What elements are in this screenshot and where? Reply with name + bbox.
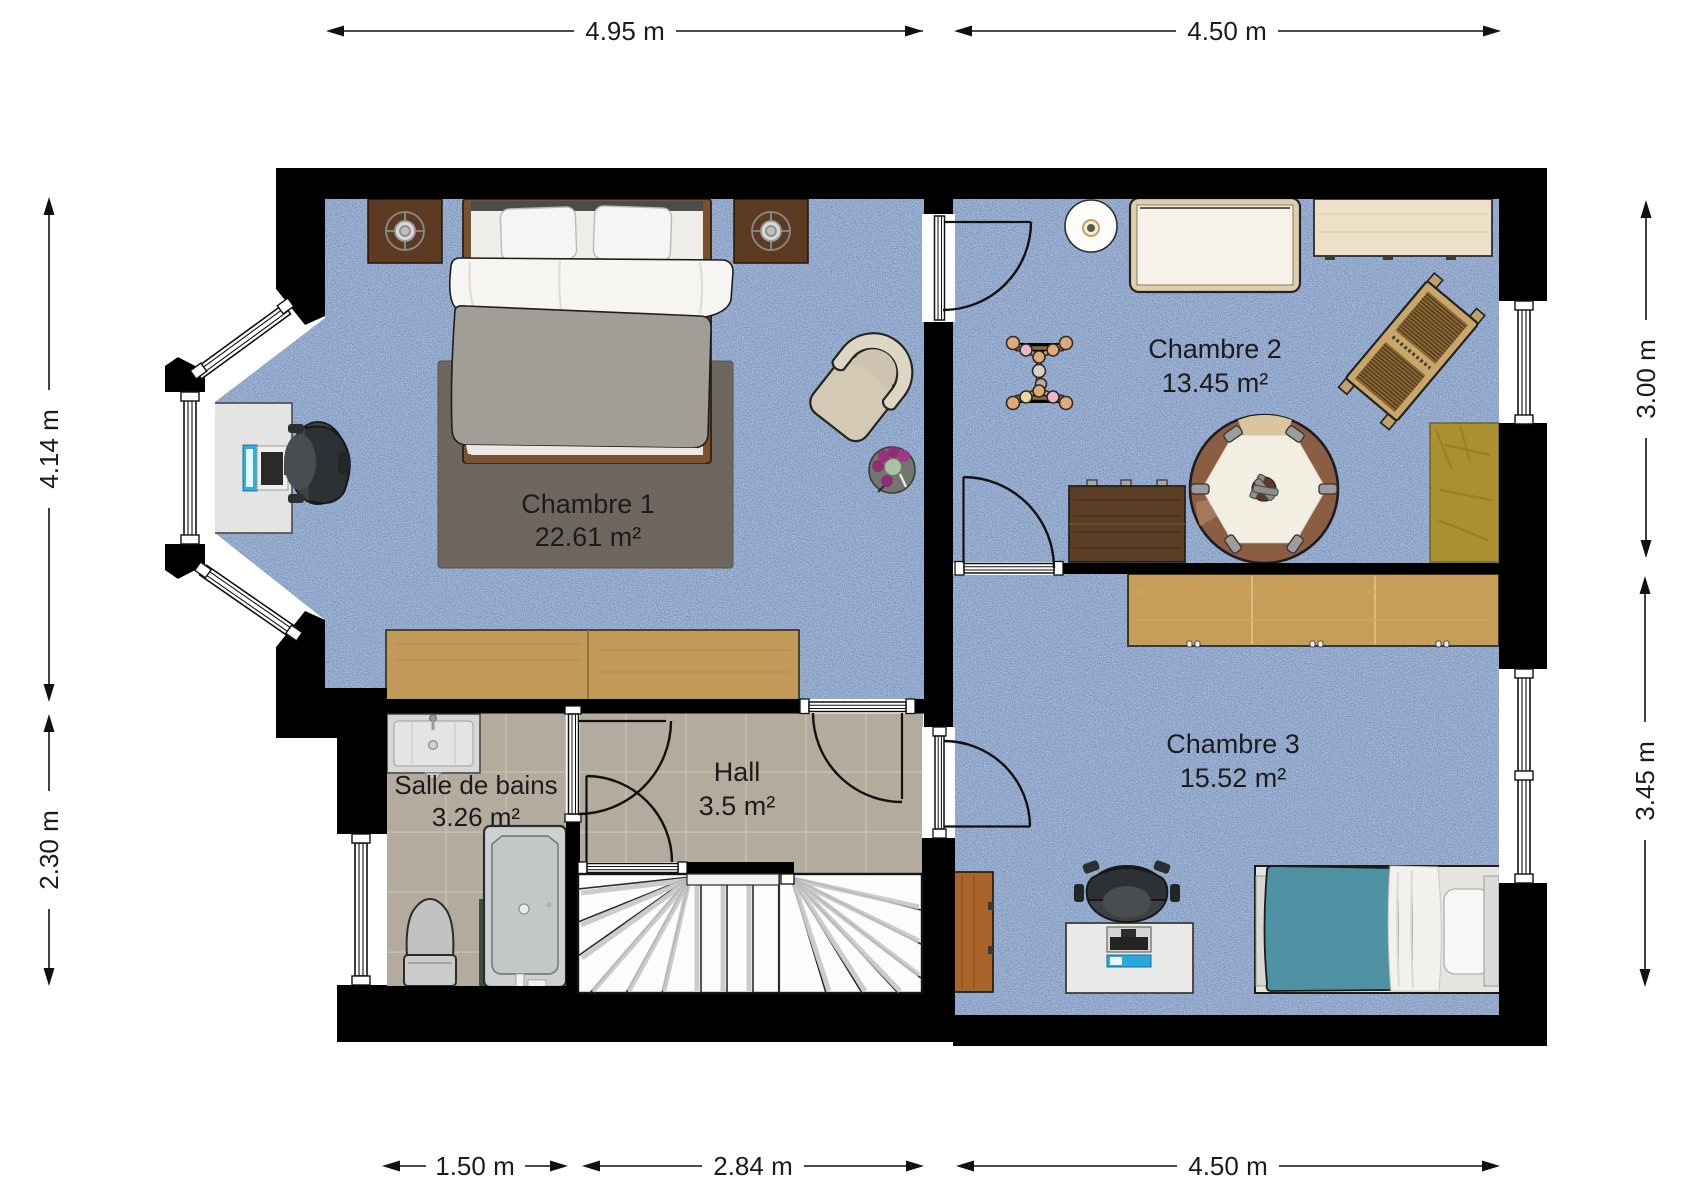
svg-text:2.30 m: 2.30 m (34, 810, 64, 890)
svg-text:Salle de bains: Salle de bains (394, 770, 557, 800)
svg-text:3.45 m: 3.45 m (1630, 741, 1660, 821)
svg-text:Chambre 3: Chambre 3 (1166, 729, 1300, 759)
svg-text:15.52 m²: 15.52 m² (1180, 763, 1287, 793)
svg-text:3.26 m²: 3.26 m² (432, 802, 520, 832)
svg-text:13.45 m²: 13.45 m² (1162, 368, 1269, 398)
svg-text:4.95 m: 4.95 m (585, 16, 665, 46)
svg-text:4.50 m: 4.50 m (1187, 16, 1267, 46)
svg-text:4.50 m: 4.50 m (1188, 1151, 1268, 1181)
svg-text:Hall: Hall (714, 757, 761, 787)
svg-text:3.00 m: 3.00 m (1631, 339, 1661, 419)
svg-text:Chambre 1: Chambre 1 (521, 489, 655, 519)
svg-text:Chambre 2: Chambre 2 (1148, 334, 1282, 364)
svg-text:3.5 m²: 3.5 m² (699, 791, 776, 821)
svg-text:4.14 m: 4.14 m (34, 409, 64, 489)
svg-text:1.50 m: 1.50 m (435, 1151, 515, 1181)
svg-text:22.61 m²: 22.61 m² (535, 522, 642, 552)
svg-text:2.84 m: 2.84 m (713, 1151, 793, 1181)
